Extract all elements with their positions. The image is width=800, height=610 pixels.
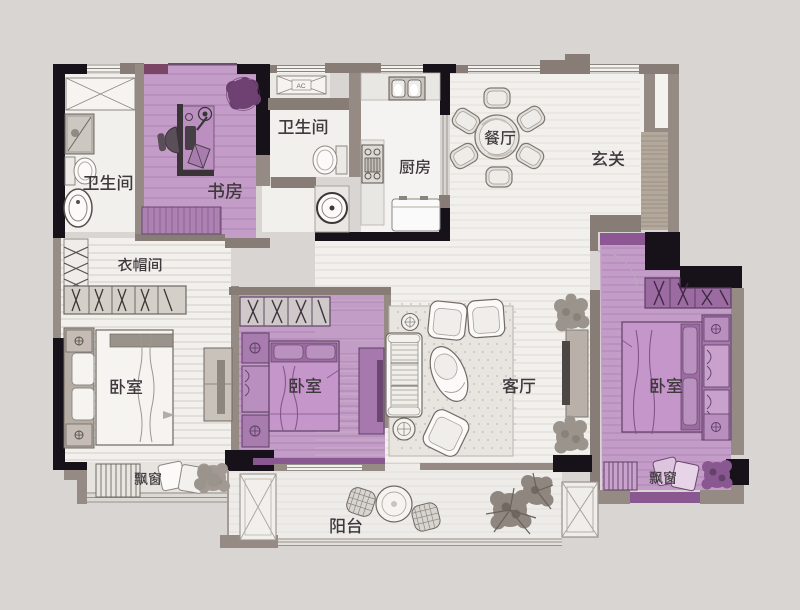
- svg-text:AC: AC: [296, 83, 305, 90]
